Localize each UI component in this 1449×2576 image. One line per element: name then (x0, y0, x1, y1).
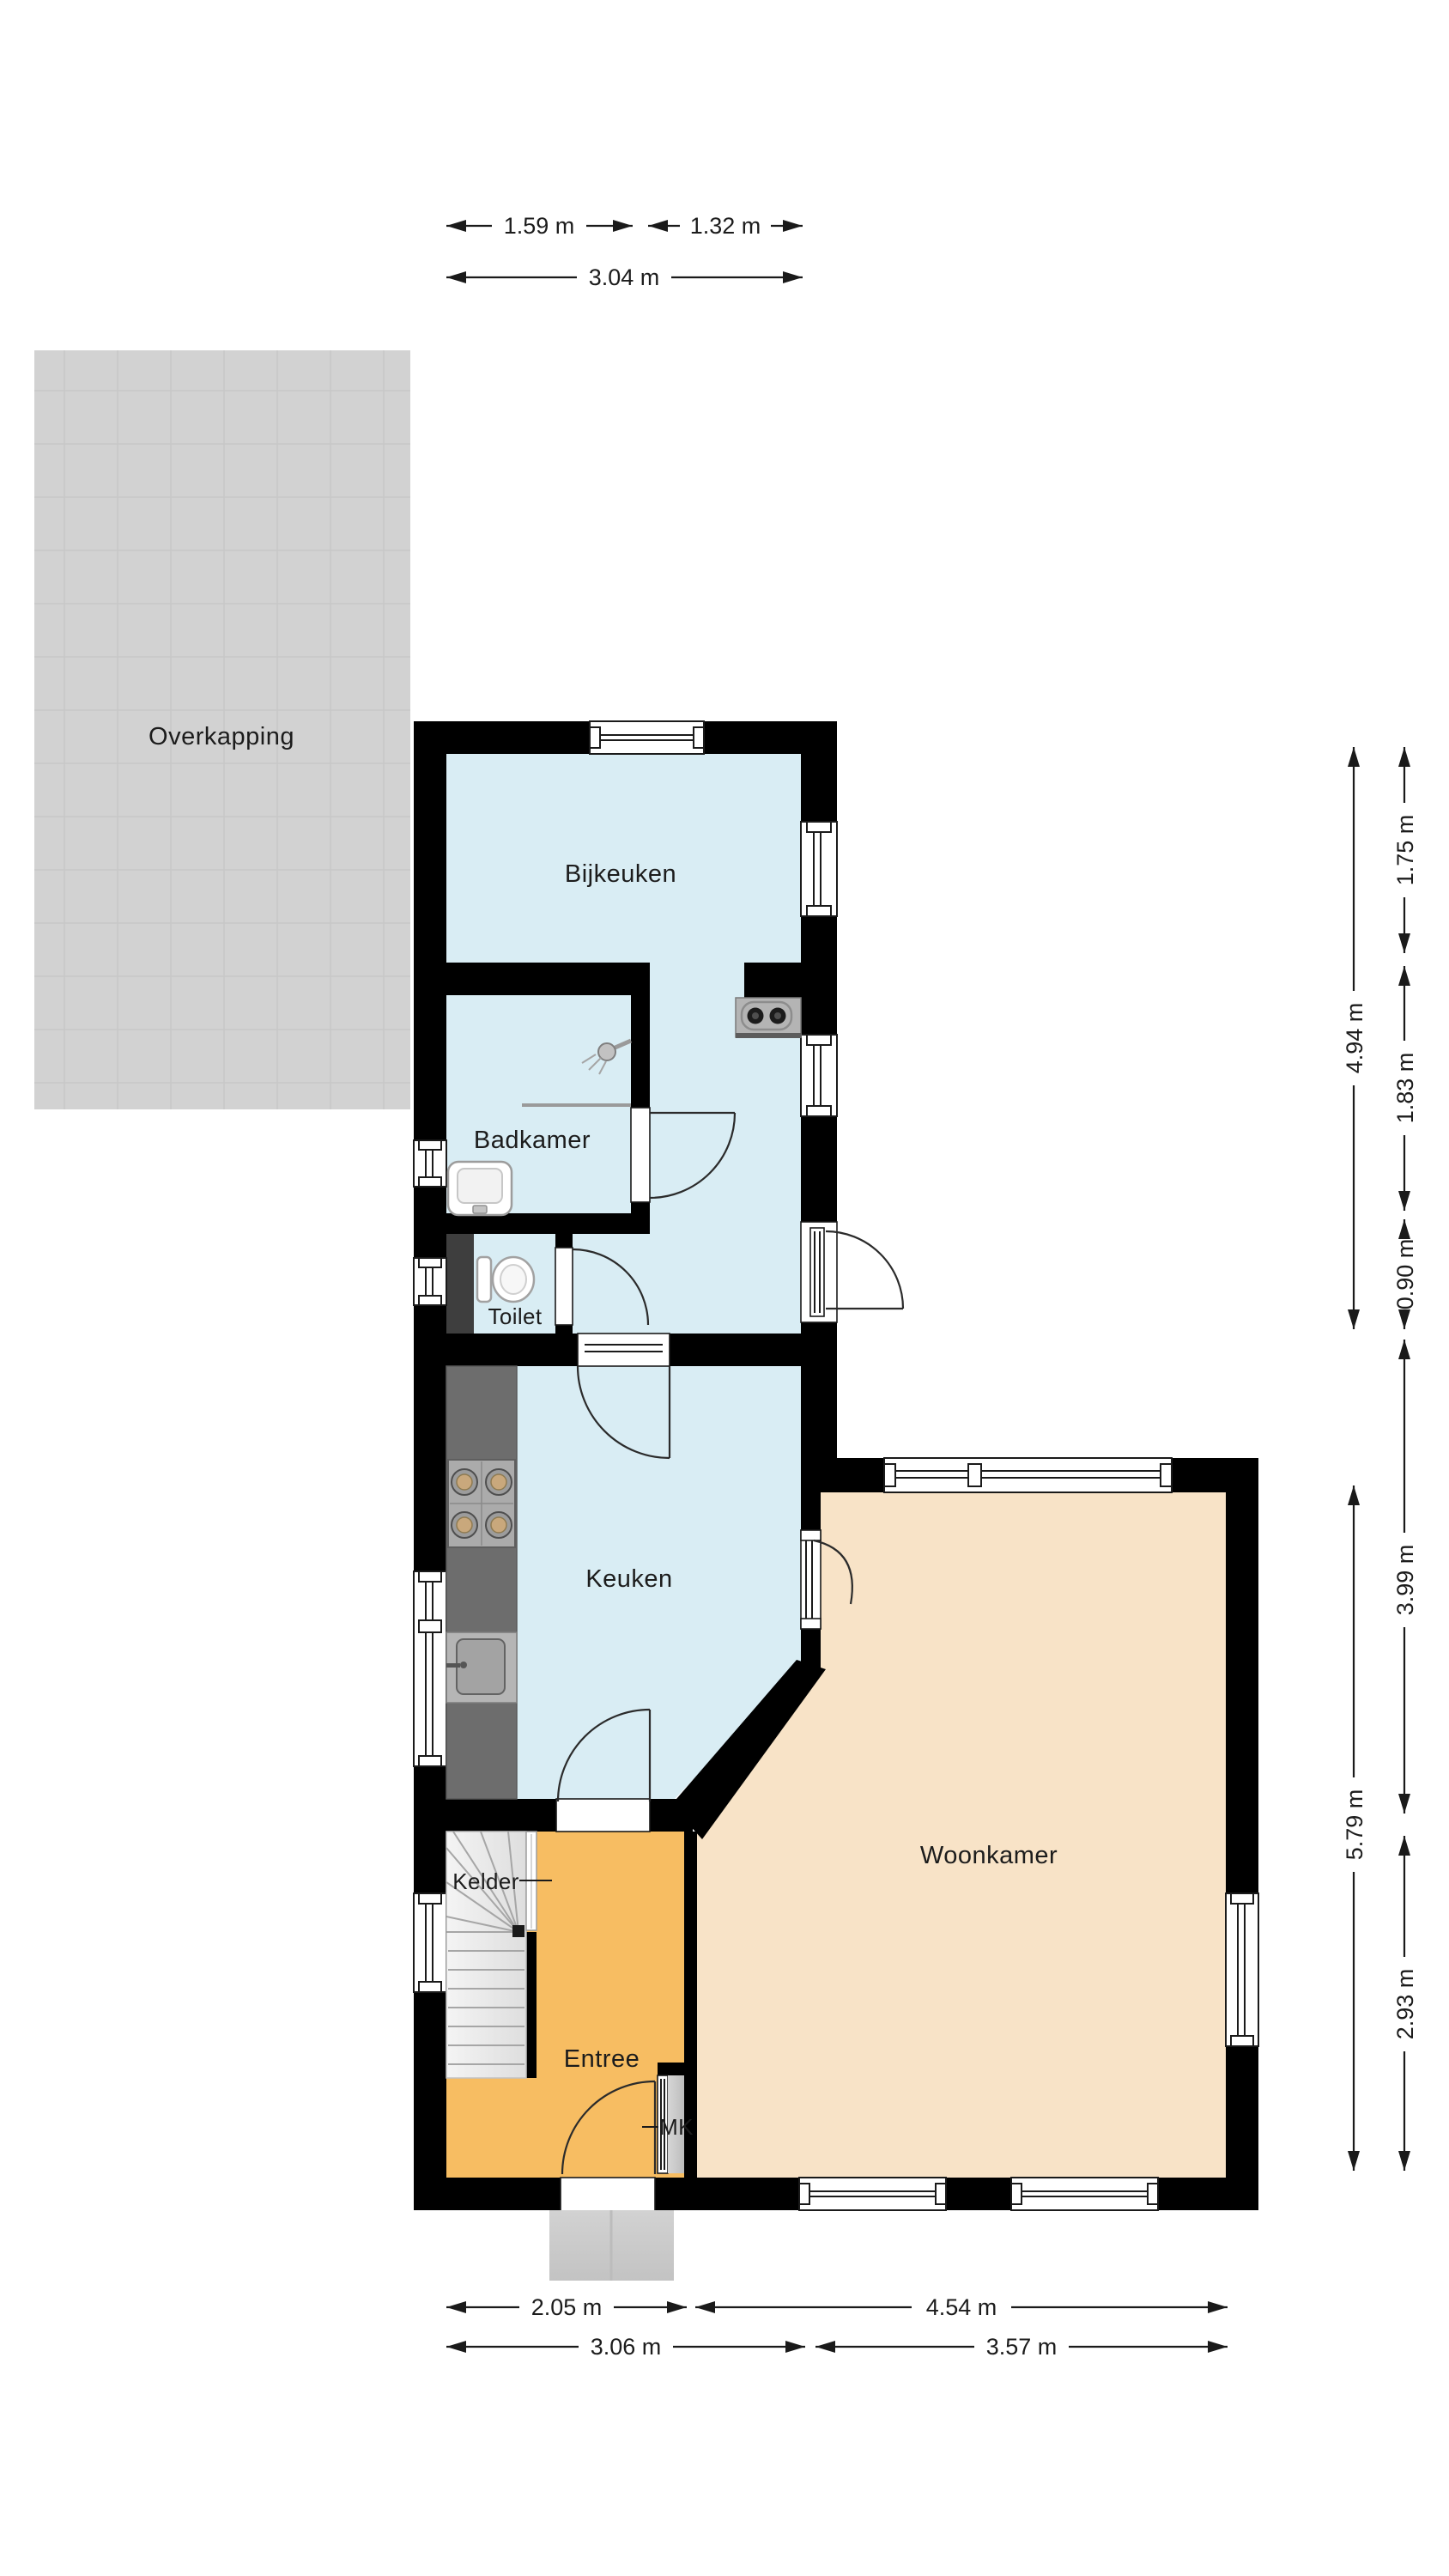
window (801, 822, 837, 916)
label-woonkamer: Woonkamer (920, 1842, 1058, 1869)
floorplan-page: Overkapping Bijkeuken Badkamer Toilet Ke… (0, 0, 1449, 2576)
label-toilet: Toilet (488, 1303, 542, 1329)
washer-icon (736, 998, 801, 1038)
window (1011, 2178, 1158, 2210)
svg-text:1.59 m: 1.59 m (504, 213, 575, 239)
duct-block (446, 1234, 474, 1334)
svg-text:1.83 m: 1.83 m (1392, 1053, 1418, 1124)
svg-text:3.57 m: 3.57 m (986, 2334, 1058, 2360)
label-kelder: Kelder (452, 1868, 519, 1894)
label-bijkeuken: Bijkeuken (565, 860, 676, 888)
window (414, 1140, 446, 1187)
window (801, 1035, 837, 1116)
svg-text:4.54 m: 4.54 m (926, 2294, 997, 2320)
window (590, 721, 704, 754)
svg-text:3.99 m: 3.99 m (1392, 1545, 1418, 1616)
svg-text:2.05 m: 2.05 m (531, 2294, 603, 2320)
svg-text:3.04 m: 3.04 m (589, 264, 660, 290)
svg-text:1.75 m: 1.75 m (1392, 815, 1418, 886)
label-badkamer: Badkamer (474, 1127, 591, 1154)
washbasin-icon (448, 1162, 512, 1215)
svg-text:4.94 m: 4.94 m (1342, 1003, 1367, 1074)
window (799, 2178, 946, 2210)
window (414, 1893, 446, 1992)
svg-text:0.90 m: 0.90 m (1392, 1239, 1418, 1310)
label-mk: MK (659, 2114, 694, 2140)
window (414, 1258, 446, 1305)
stove-icon (448, 1460, 515, 1547)
porch-step (549, 2210, 674, 2281)
svg-text:5.79 m: 5.79 m (1342, 1789, 1367, 1861)
svg-text:3.06 m: 3.06 m (591, 2334, 662, 2360)
floorplan-canvas: Overkapping Bijkeuken Badkamer Toilet Ke… (0, 0, 1449, 2576)
label-entree: Entree (564, 2045, 640, 2073)
window (1226, 1893, 1258, 2046)
window (414, 1571, 446, 1766)
kitchen-counter (446, 1366, 517, 1799)
svg-text:2.93 m: 2.93 m (1392, 1969, 1418, 2040)
sink-icon (446, 1632, 517, 1703)
newel-post (512, 1925, 524, 1937)
toilet-icon (477, 1257, 534, 1302)
label-keuken: Keuken (585, 1565, 672, 1593)
window (884, 1458, 1172, 1492)
svg-text:1.32 m: 1.32 m (690, 213, 761, 239)
label-overkapping: Overkapping (149, 723, 294, 750)
